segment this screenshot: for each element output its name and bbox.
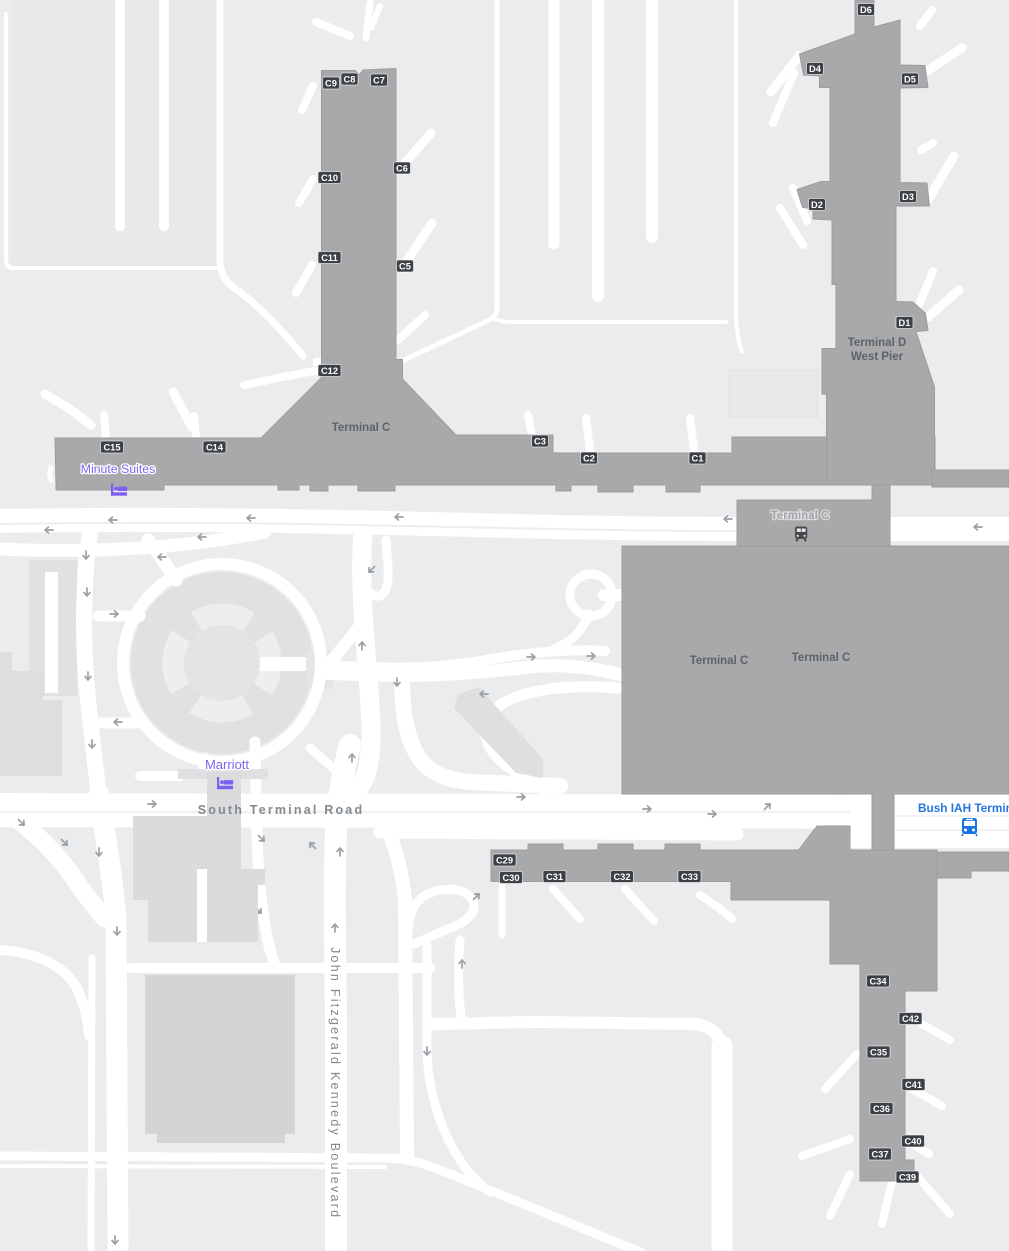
svg-text:D1: D1 — [899, 318, 911, 328]
svg-text:D4: D4 — [809, 64, 822, 74]
svg-text:C42: C42 — [902, 1014, 919, 1024]
svg-text:C3: C3 — [534, 436, 546, 446]
svg-text:C15: C15 — [103, 442, 120, 452]
svg-text:C36: C36 — [873, 1104, 890, 1114]
svg-text:C5: C5 — [399, 261, 411, 271]
svg-text:C37: C37 — [871, 1149, 888, 1159]
svg-text:C33: C33 — [681, 872, 698, 882]
svg-text:C30: C30 — [502, 873, 519, 883]
svg-text:West Pier: West Pier — [851, 351, 904, 363]
svg-text:C39: C39 — [899, 1172, 916, 1182]
svg-text:D6: D6 — [860, 5, 872, 15]
svg-text:D5: D5 — [904, 74, 916, 84]
svg-text:C31: C31 — [546, 872, 563, 882]
svg-text:C40: C40 — [904, 1136, 921, 1146]
svg-text:C32: C32 — [613, 872, 630, 882]
svg-text:Terminal D: Terminal D — [848, 337, 907, 349]
svg-text:C11: C11 — [321, 253, 338, 263]
svg-text:Bush IAH Terminal A: Bush IAH Terminal A — [918, 801, 1009, 815]
svg-text:C10: C10 — [321, 173, 338, 183]
svg-text:Terminal C: Terminal C — [332, 422, 391, 434]
svg-text:Minute Suites: Minute Suites — [81, 462, 156, 476]
svg-text:C41: C41 — [905, 1080, 922, 1090]
svg-text:C9: C9 — [325, 78, 337, 88]
svg-text:C2: C2 — [583, 453, 595, 463]
svg-text:John Fitzgerald Kennedy Boulev: John Fitzgerald Kennedy Boulevard — [328, 947, 342, 1219]
svg-text:Marriott: Marriott — [205, 757, 249, 772]
svg-text:C1: C1 — [692, 453, 704, 463]
svg-text:Terminal C: Terminal C — [771, 510, 830, 522]
svg-text:C6: C6 — [396, 163, 408, 173]
svg-text:C34: C34 — [869, 976, 887, 986]
svg-text:C14: C14 — [206, 442, 224, 452]
svg-text:C35: C35 — [870, 1047, 887, 1057]
svg-text:Terminal C: Terminal C — [690, 655, 749, 667]
svg-text:D3: D3 — [902, 192, 914, 202]
svg-text:C7: C7 — [373, 75, 385, 85]
svg-text:C12: C12 — [321, 366, 338, 376]
svg-text:Terminal C: Terminal C — [792, 652, 851, 664]
svg-text:C8: C8 — [344, 74, 356, 84]
svg-text:South Terminal Road: South Terminal Road — [198, 803, 365, 817]
svg-text:D2: D2 — [811, 200, 823, 210]
svg-text:C29: C29 — [496, 855, 513, 865]
